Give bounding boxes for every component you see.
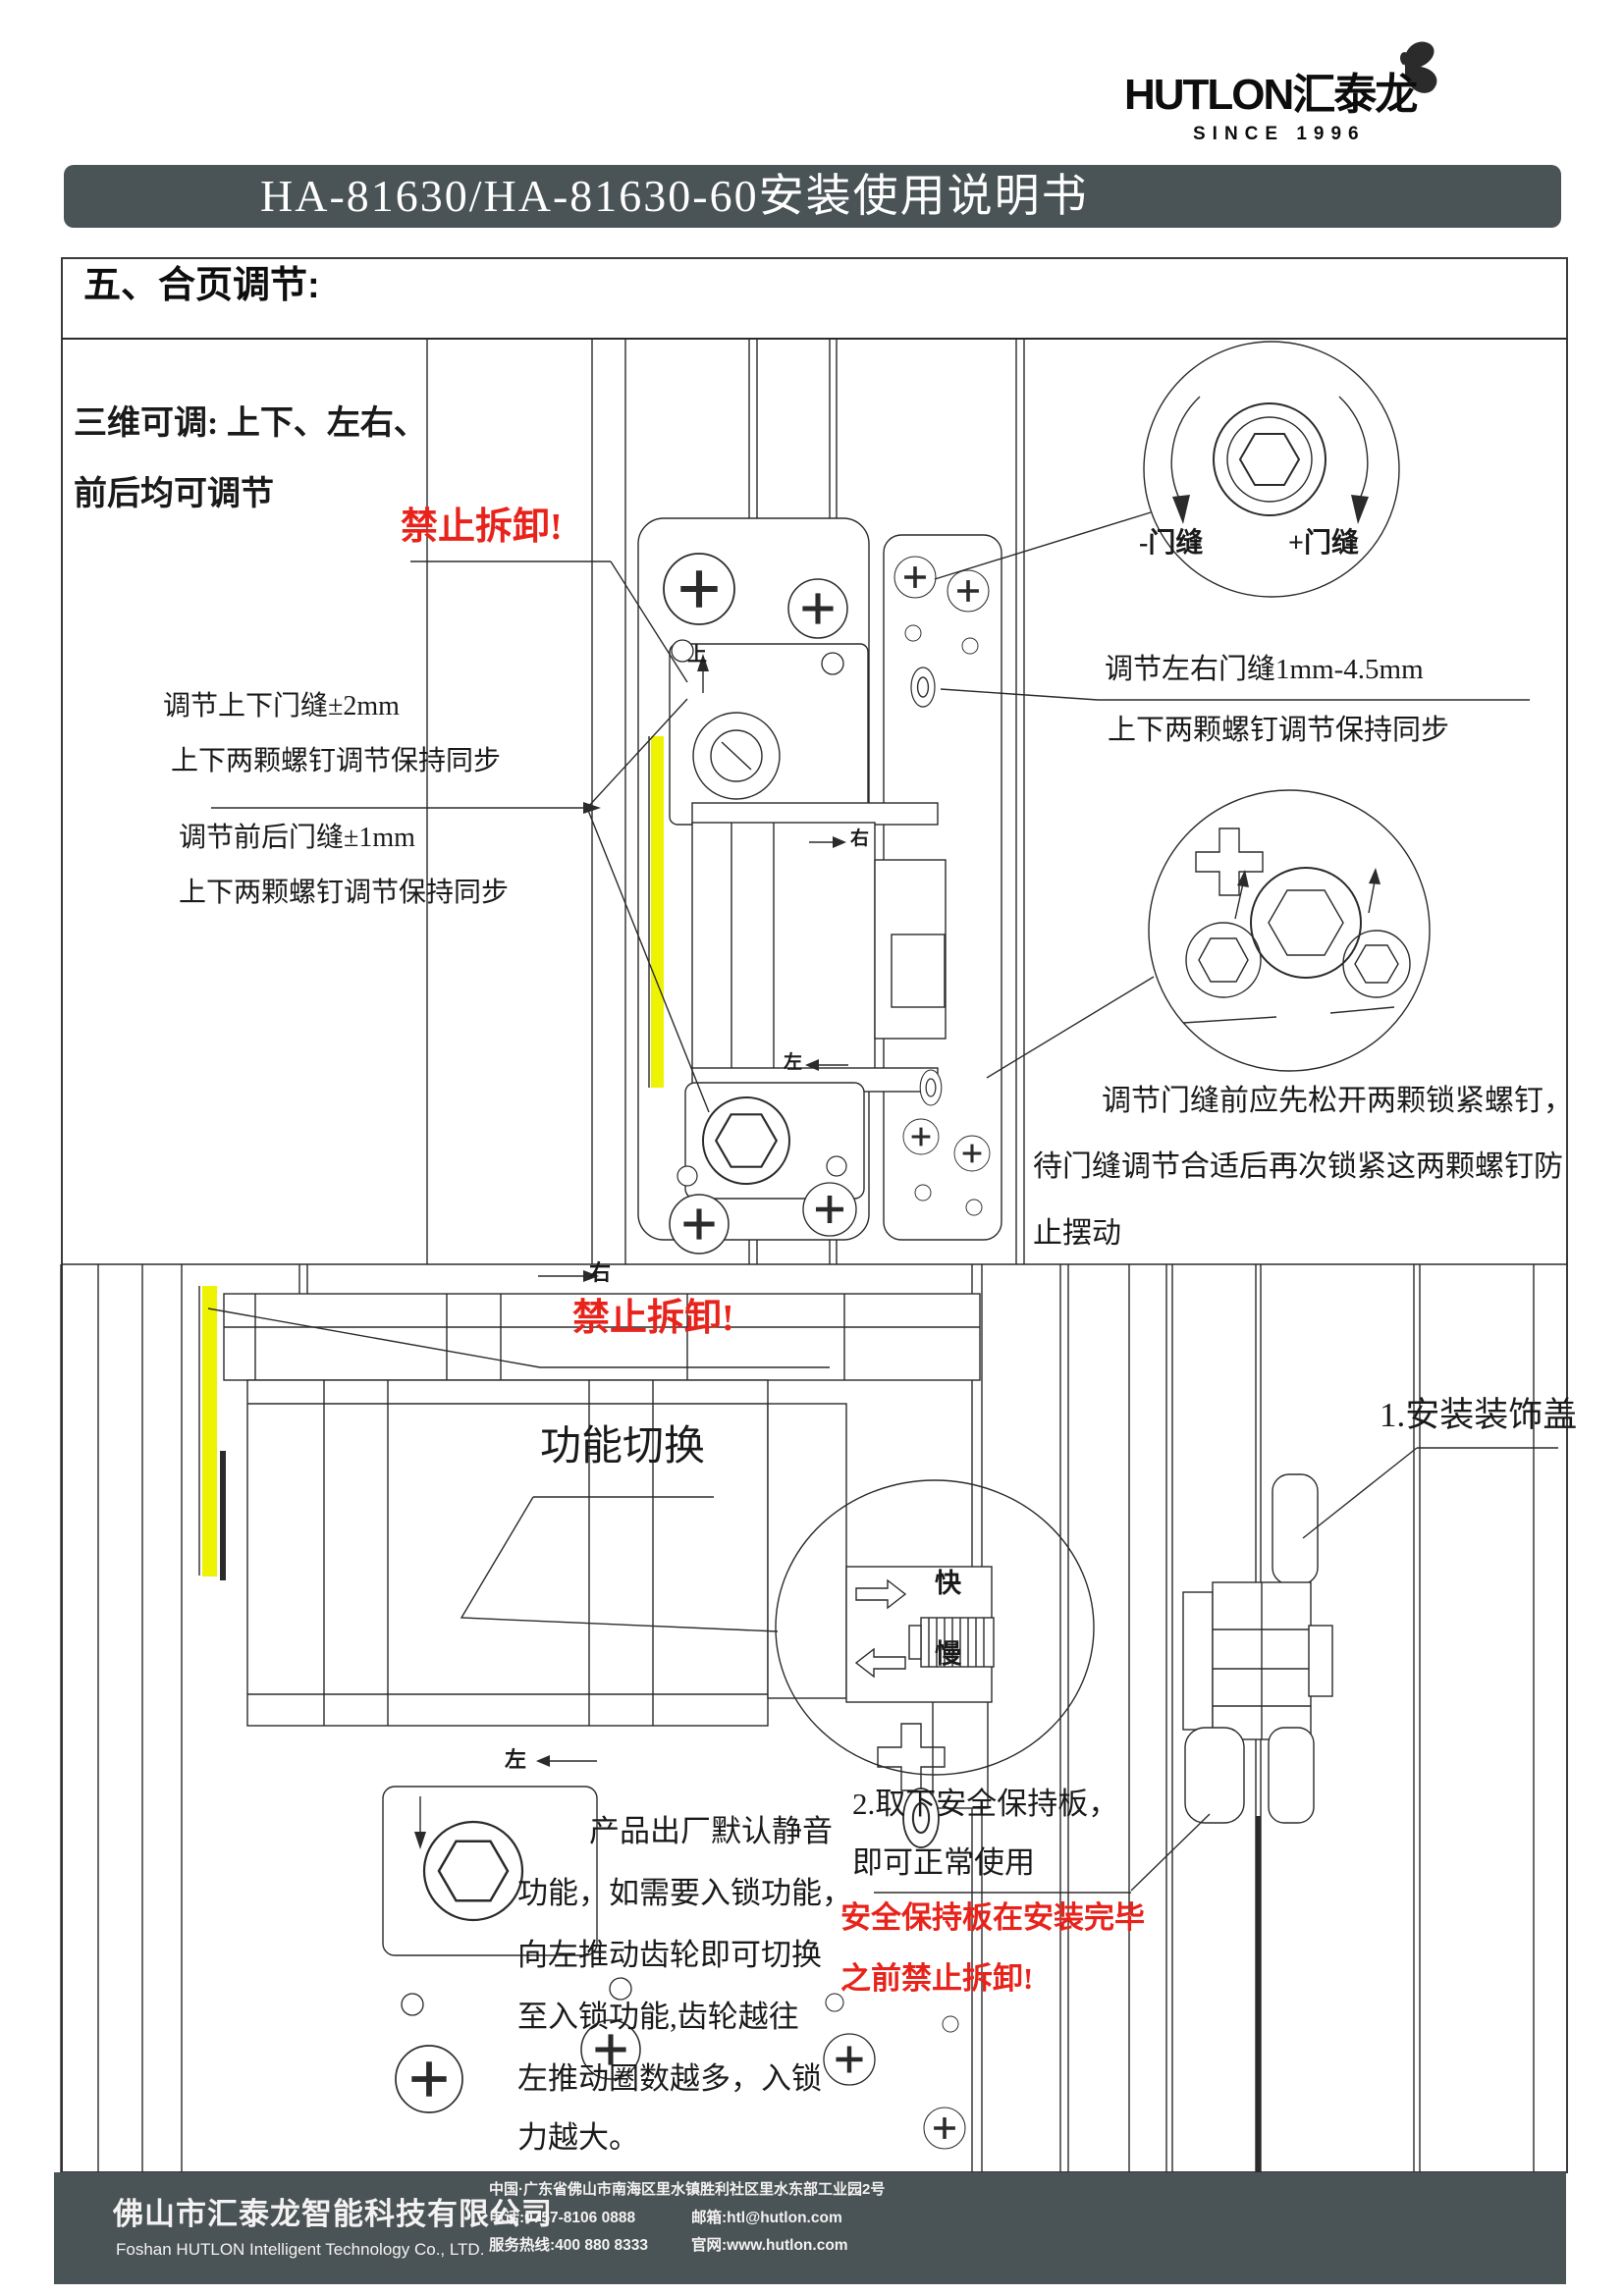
gear-paragraph-line2: 功能，如需要入锁功能， <box>517 1876 852 1911</box>
step2-line1: 2.取下安全保持板， <box>852 1787 1118 1822</box>
footer-company-cn: 佛山市汇泰龙智能科技有限公司 <box>113 2197 553 2232</box>
safety-plate <box>1185 1728 1244 1823</box>
brand-logo-en: HUTLON <box>1124 71 1292 119</box>
gear-paragraph-line6: 力越大。 <box>517 2120 639 2156</box>
phillips-screw-icon <box>824 2034 875 2085</box>
screw-hole-icon <box>966 1200 982 1215</box>
note-frontback-gap: 调节前后门缝±1mm <box>179 823 415 854</box>
lock-note-2: 待门缝调节合适后再次锁紧这两颗螺钉防 <box>1033 1150 1563 1185</box>
section-heading: 五、合页调节: <box>83 265 320 308</box>
step1-install-cover: 1.安装装饰盖 <box>1380 1396 1577 1435</box>
screw-hole-icon <box>905 625 921 641</box>
footer-hotline: 服务热线:400 880 8333 <box>489 2237 648 2255</box>
phillips-screw-icon <box>947 570 989 612</box>
hex-screw-icon <box>424 1822 522 1920</box>
manual-page: HUTLON汇泰龙 SINCE 1996 HA-81630/HA-81630-6… <box>0 0 1624 2296</box>
screw-hole-icon <box>677 1166 697 1186</box>
note-leftright-sync: 上下两颗螺钉调节保持同步 <box>1108 715 1449 747</box>
screw-hole-icon <box>915 1185 931 1201</box>
note-leftright-gap: 调节左右门缝1mm-4.5mm <box>1105 654 1424 686</box>
phillips-screw-icon <box>788 579 847 638</box>
phillips-screw-icon <box>894 557 936 598</box>
footer-bar: 佛山市汇泰龙智能科技有限公司 Foshan HUTLON Intelligent… <box>54 2172 1566 2284</box>
gap-minus-label: -门缝 <box>1139 528 1203 560</box>
screw-hole-icon <box>827 1156 846 1176</box>
lock-note-1: 调节门缝前应先松开两颗锁紧螺钉， <box>1102 1085 1573 1119</box>
highlight-strip-panel2 <box>202 1286 217 1576</box>
step2-line2: 即可正常使用 <box>852 1845 1035 1881</box>
phillips-screw-icon <box>803 1183 856 1236</box>
footer-website: 官网:www.hutlon.com <box>691 2237 848 2255</box>
phillips-screw-icon <box>903 1119 939 1154</box>
intro-line-1: 三维可调: 上下、左右、 <box>74 404 427 443</box>
label-left-p1: 左 <box>784 1052 802 1074</box>
detail-circle-lock-screws <box>1149 790 1430 1071</box>
intro-line-2: 前后均可调节 <box>74 475 274 513</box>
screw-hole-icon <box>826 1994 843 2011</box>
screw-hole-icon <box>402 1994 423 2015</box>
gear-paragraph-line1: 产品出厂默认静音 <box>589 1814 833 1849</box>
footer-company-en: Foshan HUTLON Intelligent Technology Co.… <box>116 2240 484 2260</box>
label-up: 上 <box>687 644 707 667</box>
gear-paragraph-line5: 左推动圈数越多，入锁 <box>517 2061 822 2097</box>
brand-logo-cn: 汇泰龙 <box>1292 71 1416 119</box>
label-left-p2: 左 <box>505 1747 526 1772</box>
document-title: HA-81630/HA-81630-60安装使用说明书 <box>260 165 1089 228</box>
screw-hole-icon <box>610 1978 631 2000</box>
footer-address: 中国·广东省佛山市南海区里水镇胜利社区里水东部工业园2号 <box>489 2181 885 2198</box>
hex-screw-icon <box>703 1097 789 1184</box>
adjust-screw-icon <box>911 667 935 707</box>
footer-email: 邮箱:htl@hutlon.com <box>691 2210 842 2227</box>
label-right-p1: 右 <box>850 828 869 850</box>
function-switch-heading: 功能切换 <box>540 1423 705 1470</box>
screw-hole-icon <box>943 2016 958 2032</box>
brand-since: SINCE 1996 <box>1193 124 1366 145</box>
decorative-cover <box>1272 1474 1318 1584</box>
warning-no-disassemble-1: 禁止拆卸! <box>401 507 563 550</box>
phillips-screw-icon <box>396 2046 462 2112</box>
note-updown-sync: 上下两颗螺钉调节保持同步 <box>171 746 501 777</box>
highlight-strip-panel1 <box>651 736 664 1088</box>
phillips-screw-icon <box>664 554 734 624</box>
gear-paragraph-line4: 至入锁功能,齿轮越往 <box>517 2000 799 2035</box>
gear-paragraph-line3: 向左推动齿轮即可切换 <box>517 1938 822 1973</box>
phillips-screw-icon <box>954 1136 990 1171</box>
note-frontback-sync: 上下两颗螺钉调节保持同步 <box>179 878 509 909</box>
screw-hole-icon <box>822 653 843 674</box>
gap-plus-label: +门缝 <box>1288 528 1359 560</box>
safety-plate-warning-1: 安全保持板在安装完毕 <box>840 1900 1145 1936</box>
warning-no-disassemble-2: 禁止拆卸! <box>572 1298 734 1341</box>
phillips-screw-icon <box>670 1195 729 1254</box>
title-bar: HA-81630/HA-81630-60安装使用说明书 <box>64 165 1561 228</box>
screw-hole-icon <box>962 638 978 654</box>
panel2-left-diagram <box>61 1264 1094 2172</box>
label-right-p2: 右 <box>589 1260 611 1285</box>
safety-plate-warning-2: 之前禁止拆卸! <box>840 1961 1033 1997</box>
brand-logo: HUTLON汇泰龙 <box>1124 71 1416 121</box>
lock-note-3: 止摆动 <box>1033 1217 1121 1252</box>
note-updown-gap: 调节上下门缝±2mm <box>163 691 400 722</box>
footer-phone: 电话:0757-8106 0888 <box>489 2210 635 2227</box>
phillips-screw-icon <box>924 2108 965 2149</box>
cross-mark-icon <box>1196 828 1263 895</box>
adjust-screw-icon <box>920 1070 942 1105</box>
label-fast: 快 <box>935 1569 961 1599</box>
label-slow: 慢 <box>935 1639 961 1670</box>
panel1-hinge <box>638 518 1001 1254</box>
